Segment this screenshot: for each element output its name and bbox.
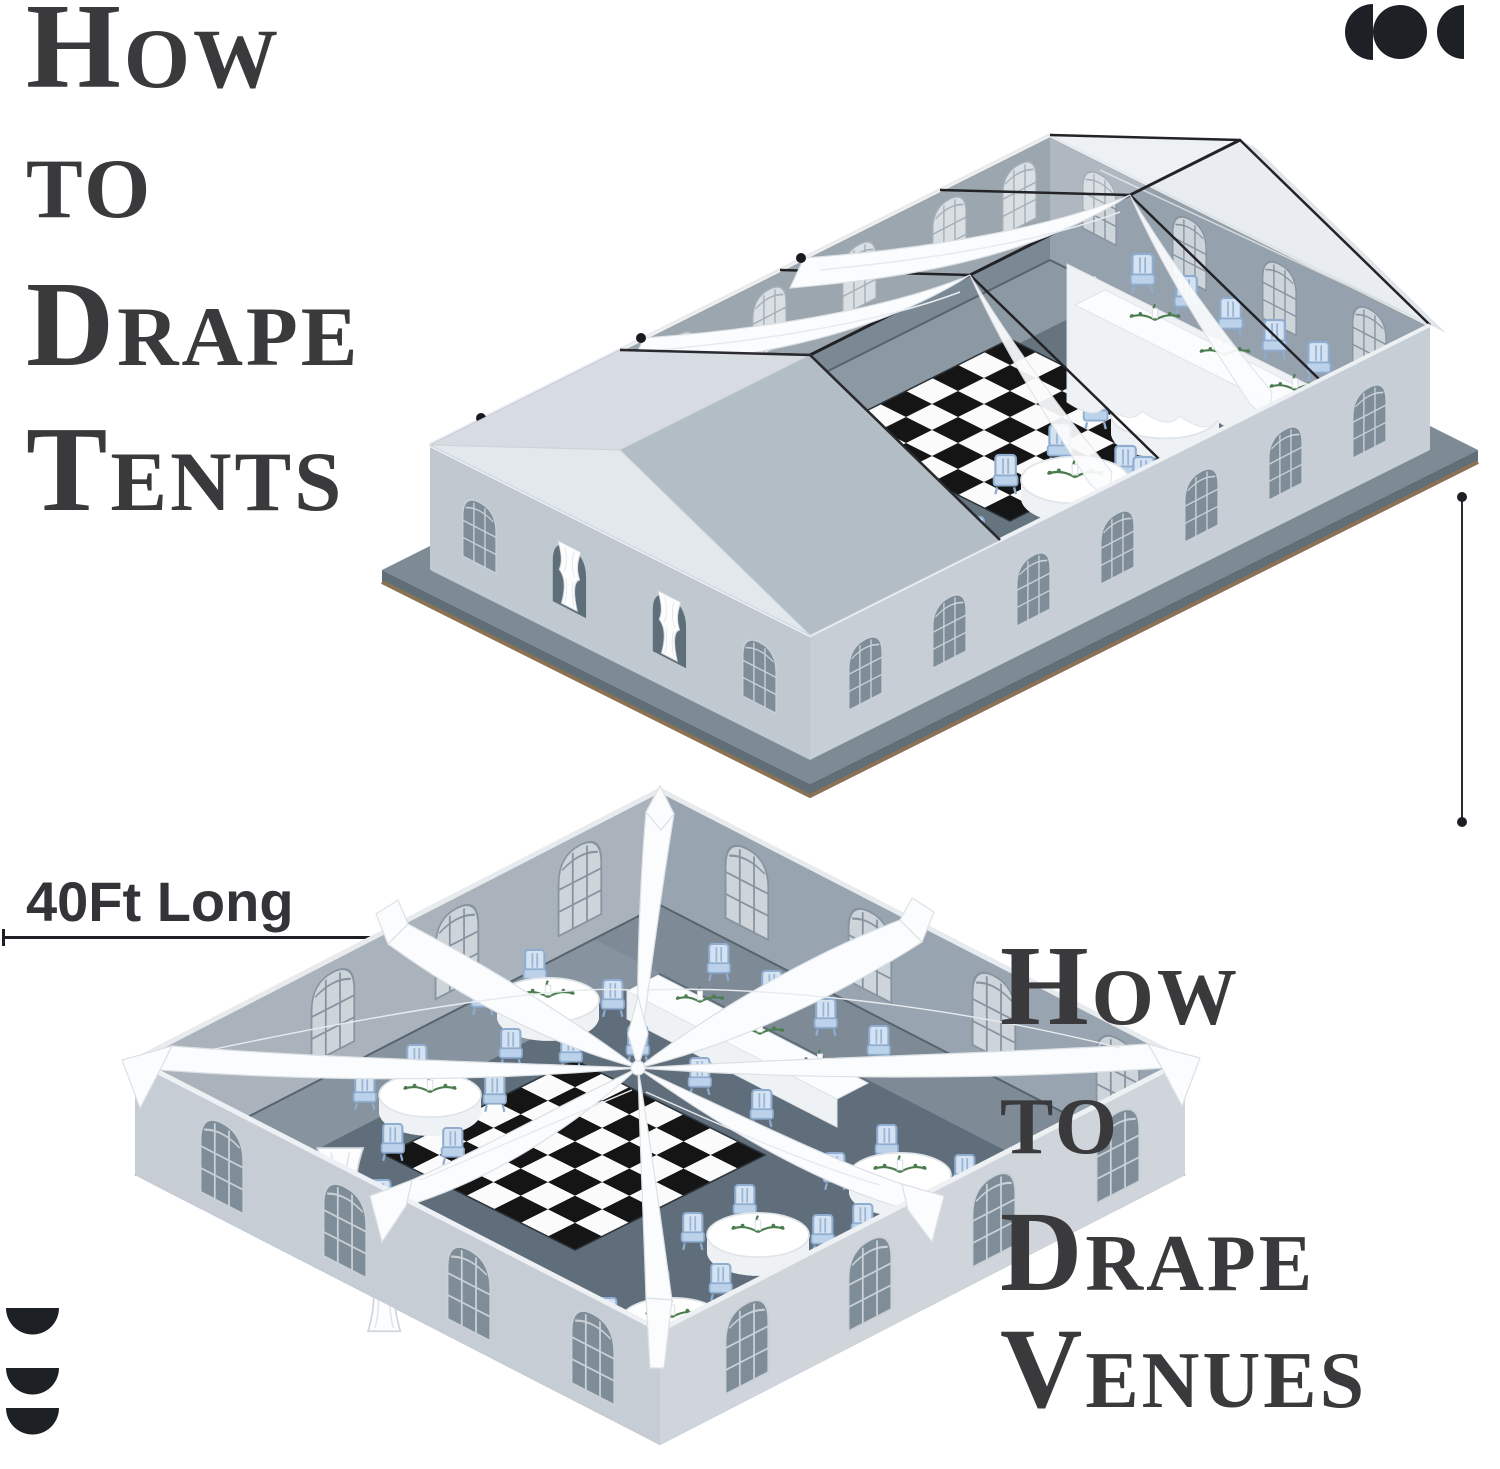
- half-disc-icon: [6, 1308, 59, 1335]
- half-disc-icon: [6, 1408, 59, 1435]
- brand-mark-top-right: [1345, 4, 1464, 60]
- headline-top-line-4: Tents: [26, 409, 344, 531]
- half-disc-icon: [6, 1368, 59, 1395]
- drape-finial: [796, 253, 806, 263]
- drape-knot: [631, 1061, 645, 1075]
- measurement-label: 40Ft Long: [26, 869, 294, 934]
- headline-top-line-1: How: [26, 0, 281, 108]
- circle-icon: [1373, 5, 1427, 59]
- headline-top-line-3: Drape: [26, 264, 361, 386]
- headline-bottom-line-4: Venues: [1000, 1312, 1367, 1426]
- half-circle-icon: [1345, 4, 1373, 60]
- brand-mark-bottom-left: [6, 1308, 59, 1435]
- half-circle-icon: [1437, 5, 1464, 59]
- headline-bottom-line-3: Drape: [1000, 1195, 1315, 1309]
- headline-bottom-line-2: to: [1000, 1058, 1120, 1172]
- headline-bottom-line-1: How: [1000, 929, 1240, 1043]
- drape-finial: [636, 333, 646, 343]
- tent-illustration: [382, 135, 1478, 796]
- page: How to Drape Tents How to Drape Venues 4…: [0, 0, 1500, 1469]
- headline-top-line-2: to: [26, 116, 153, 238]
